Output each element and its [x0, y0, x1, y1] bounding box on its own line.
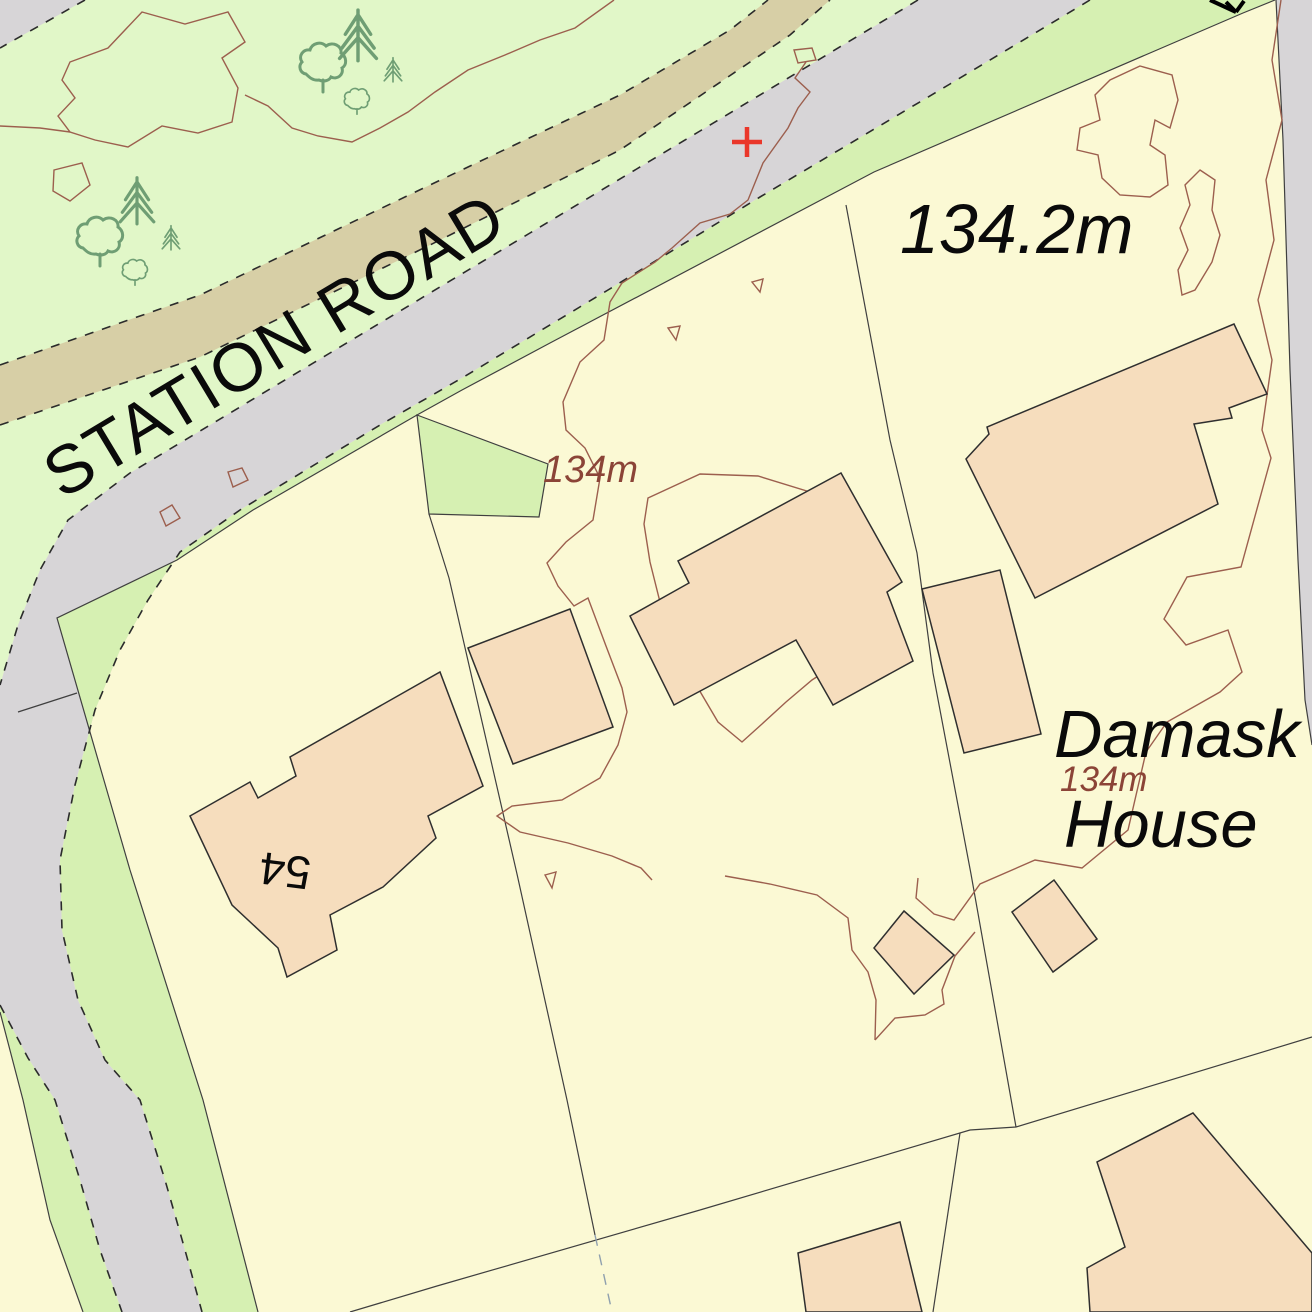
- map-viewport: STATION ROAD 134.2m 134m Damask 134m Hou…: [0, 0, 1312, 1312]
- house-name-line2: House: [1064, 787, 1258, 862]
- map-canvas: STATION ROAD 134.2m 134m Damask 134m Hou…: [0, 0, 1312, 1312]
- spot-height-label: 134.2m: [900, 190, 1133, 268]
- contour-label-north: 134m: [543, 449, 638, 491]
- house-number-label: 54: [256, 842, 313, 900]
